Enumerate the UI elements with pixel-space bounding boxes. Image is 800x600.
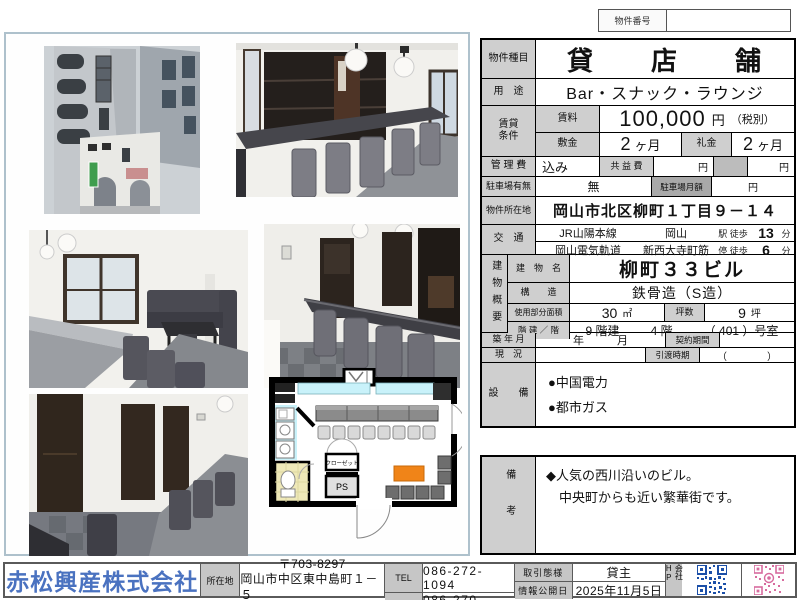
photo-lounge-seating (29, 230, 248, 388)
deal-block: 取引態様 貸主 情報公開日 2025年11月5日 (515, 564, 667, 596)
transport-line-1: JR山陽本線 岡山 駅 徒歩 13 分 (536, 225, 794, 241)
building-exterior-image (44, 46, 200, 214)
building-summary-label: 建物概要 (482, 255, 508, 332)
equipment-label: 設 備 (482, 363, 536, 426)
phone-block: TEL 086-272-1094 FAX 086-270-0220 (385, 564, 515, 596)
photo-bar-counter-1 (236, 43, 458, 197)
area-value-cell: 30 ㎡ (570, 304, 665, 321)
row-management-fee: 管 理 費 込み 共 益 費 円 円 (482, 156, 794, 176)
row-building-name: 建 物 名 柳町３３ビル (508, 255, 794, 282)
property-flyer-page: 物件番号 (0, 0, 800, 600)
tsubo-value: 9 (738, 305, 746, 321)
doors-room-image (29, 394, 248, 556)
structure-label: 構 造 (508, 283, 570, 303)
handover-label: 引渡時期 (646, 348, 700, 362)
parking-monthly-label: 駐車場月額 (652, 177, 712, 196)
company-hp-qr-code (697, 565, 727, 595)
handover-value: （ ） (700, 348, 794, 362)
building-name-label: 建 物 名 (508, 255, 570, 282)
company-postal-code: 〒703-8297 (279, 557, 346, 573)
remarks-line: ◆人気の西川沿いのビル。 (546, 465, 784, 487)
closet-label: クローゼット (325, 459, 358, 467)
contract-period-value (720, 333, 794, 347)
management-extra-label (714, 157, 748, 176)
property-detail-table: 物件種目 貸 店 舗 用 途 Bar・スナック・ラウンジ 賃貸条件 賃料 100… (480, 38, 796, 428)
row-use: 用 途 Bar・スナック・ラウンジ (482, 78, 794, 105)
tsubo-value-cell: 9 坪 (705, 304, 794, 321)
key-money-unit: ヶ月 (757, 135, 783, 154)
photo-building-exterior (44, 46, 200, 214)
transport-line-1-name: JR山陽本線 (536, 225, 640, 241)
row-address: 物件所在地 岡山市北区柳町１丁目９－１４ (482, 196, 794, 224)
tsubo-label: 坪数 (665, 304, 705, 321)
row-deposit-keymoney: 敷金 2 ヶ月 礼金 2 ヶ月 (536, 132, 794, 156)
company-name: 赤松興産株式会社 (5, 564, 201, 596)
company-address-cell: 〒703-8297 岡山市中区東中島町１－５ (240, 564, 385, 596)
parking-value: 無 (536, 177, 652, 196)
row-area: 使用部分面積 30 ㎡ 坪数 9 坪 (508, 303, 794, 321)
area-unit: ㎡ (622, 305, 632, 320)
row-equipment: 設 備 ●中国電力 ●都市ガス (482, 362, 794, 426)
remarks-label: 備考 (482, 457, 536, 553)
fax-number: 086-270-0220 (423, 593, 514, 600)
rent-unit: 円 (712, 110, 725, 129)
bar-counter-image-1 (236, 43, 458, 197)
management-fee-label: 管 理 費 (482, 157, 536, 176)
deposit-label: 敷金 (536, 133, 600, 156)
address-label: 物件所在地 (482, 197, 536, 224)
photo-panel: クローゼット PS (4, 32, 470, 556)
transport-line-1-unit: 分 (778, 225, 794, 241)
remarks-line: 中央町からも近い繁華街です。 (546, 487, 784, 509)
deposit-value-cell: 2 ヶ月 (600, 133, 682, 156)
property-number-box: 物件番号 (598, 9, 791, 32)
photo-doors-room (29, 394, 248, 556)
bar-counter-image-2 (264, 224, 460, 388)
built-date-label: 築 年 月 (482, 333, 536, 347)
company-hp-label: 会社HP (666, 564, 682, 596)
fax-label: FAX (385, 593, 423, 600)
row-parking: 駐車場有無 無 駐車場月額 円 (482, 176, 794, 196)
building-name-value: 柳町３３ビル (570, 255, 794, 282)
published-date-value: 2025年11月5日 (573, 582, 666, 599)
management-fee-value: 込み (536, 157, 600, 176)
floor-plan-drawing: クローゼット PS (268, 368, 462, 558)
use-value: Bar・スナック・ラウンジ (536, 79, 794, 105)
row-transport: 交 通 JR山陽本線 岡山 駅 徒歩 13 分 岡山電気軌道 新西大寺町筋 停 … (482, 224, 794, 254)
contract-period-label: 契約期間 (666, 333, 720, 347)
property-number-label: 物件番号 (599, 10, 667, 31)
area-value: 30 (602, 305, 618, 321)
pipe-shaft-label: PS (336, 482, 348, 492)
company-hp-qr-cell (682, 564, 742, 596)
current-status-label: 現 況 (482, 348, 536, 362)
property-type-label: 物件種目 (482, 40, 536, 78)
equipment-item: ●中国電力 (548, 371, 782, 396)
built-date-value: 年 月 (536, 333, 666, 347)
tel-label: TEL (385, 564, 423, 592)
row-structure: 構 造 鉄骨造（S造） (508, 282, 794, 303)
rent-tax-note: （税別） (731, 111, 775, 127)
deal-type-label: 取引態様 (515, 564, 573, 581)
rent-value-cell: 100,000 円 （税別） (600, 106, 794, 132)
equipment-list: ●中国電力 ●都市ガス (536, 363, 794, 426)
management-extra-unit: 円 (748, 157, 794, 176)
remarks-content: ◆人気の西川沿いのビル。 中央町からも近い繁華街です。 (536, 457, 794, 553)
key-money-label: 礼金 (682, 133, 732, 156)
current-status-value (536, 348, 646, 362)
row-current-status: 現 況 引渡時期 （ ） (482, 347, 794, 362)
remarks-box: 備考 ◆人気の西川沿いのビル。 中央町からも近い繁華街です。 (480, 455, 796, 555)
transport-label: 交 通 (482, 225, 536, 254)
parking-monthly-unit: 円 (712, 177, 794, 196)
row-lease-terms: 賃貸条件 賃料 100,000 円 （税別） 敷金 2 ヶ月 礼 (482, 105, 794, 156)
rent-label: 賃料 (536, 106, 600, 132)
secondary-qr-cell (742, 564, 795, 596)
equipment-item: ●都市ガス (548, 396, 782, 421)
transport-line-1-minutes: 13 (754, 225, 778, 241)
rent-amount: 100,000 (619, 106, 706, 132)
lounge-seating-image (29, 230, 248, 388)
transport-line-1-walk: 駅 徒歩 (712, 225, 754, 241)
pink-qr-code (754, 565, 784, 595)
parking-label: 駐車場有無 (482, 177, 536, 196)
deal-type-row: 取引態様 貸主 (515, 564, 666, 581)
key-money-value-cell: 2 ヶ月 (732, 133, 794, 156)
row-rent: 賃料 100,000 円 （税別） (536, 106, 794, 132)
address-value: 岡山市北区柳町１丁目９－１４ (536, 197, 794, 224)
common-fee-unit: 円 (654, 157, 714, 176)
company-address: 岡山市中区東中島町１－５ (240, 572, 384, 600)
tsubo-unit: 坪 (751, 305, 761, 320)
common-fee-label: 共 益 費 (600, 157, 654, 176)
deposit-unit: ヶ月 (635, 135, 661, 154)
transport-line-1-station: 岡山 (640, 225, 712, 241)
tel-number: 086-272-1094 (423, 564, 514, 592)
property-type-value: 貸 店 舗 (536, 40, 794, 78)
company-location-label: 所在地 (201, 564, 241, 596)
published-date-label: 情報公開日 (515, 582, 573, 599)
footer-bar: 赤松興産株式会社 所在地 〒703-8297 岡山市中区東中島町１－５ TEL … (3, 562, 797, 598)
deposit-months: 2 (620, 134, 630, 155)
use-label: 用 途 (482, 79, 536, 105)
tel-row: TEL 086-272-1094 (385, 564, 514, 592)
fax-row: FAX 086-270-0220 (385, 592, 514, 600)
lease-terms-label: 賃貸条件 (482, 106, 536, 156)
row-building-summary: 建物概要 建 物 名 柳町３３ビル 構 造 鉄骨造（S造） 使用部分面積 30 … (482, 254, 794, 332)
property-number-value (667, 10, 790, 31)
floor-plan: クローゼット PS (268, 368, 462, 558)
photo-bar-counter-2 (264, 224, 460, 388)
key-money-months: 2 (743, 134, 753, 155)
row-property-type: 物件種目 貸 店 舗 (482, 40, 794, 78)
deal-type-value: 貸主 (573, 564, 666, 581)
row-built-date: 築 年 月 年 月 契約期間 (482, 332, 794, 347)
area-label: 使用部分面積 (508, 304, 570, 321)
published-date-row: 情報公開日 2025年11月5日 (515, 581, 666, 599)
structure-value: 鉄骨造（S造） (570, 283, 794, 303)
